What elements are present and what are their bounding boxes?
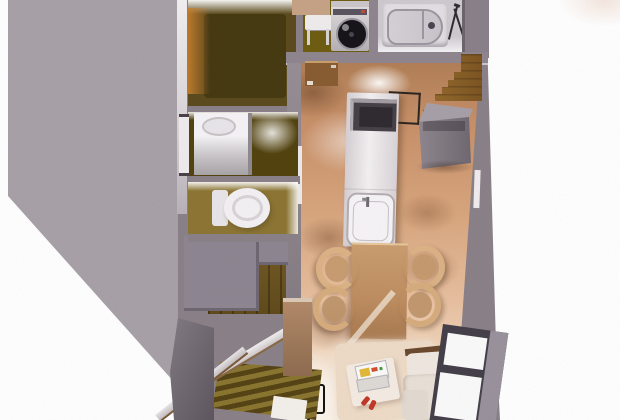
laptop-screen-red [371,367,378,372]
wall-toilet-bottom [188,234,300,242]
toilet-bowl [224,188,270,228]
drum-center [349,32,354,37]
floorplan-render-canvas [0,0,620,420]
toilet-right-light [286,182,298,236]
sofa-chaise [402,390,428,420]
chair-seat [322,296,346,322]
stool-top [305,15,332,30]
dining-chair [399,283,441,327]
laundry-counter [292,0,330,15]
dining-chair [316,247,358,291]
toilet-seat-ring [232,195,263,221]
cabinet-highlight [331,65,336,68]
left-wall-light-band [177,0,187,214]
stool-leg [307,29,310,45]
washing-machine [331,1,369,51]
window-pane [434,372,482,420]
dining-chair [313,287,355,331]
rack-joint [454,3,461,8]
window-pane [443,333,487,370]
sink-faucet [366,197,369,207]
building-corner-wall [170,318,214,420]
hall-lamp-glow [188,8,210,94]
dining-chair [403,245,445,289]
wall-laundry-bath [369,0,378,57]
stool-leg [326,29,329,45]
hall-floor-shade [204,14,286,98]
entry-floor-white [271,396,308,420]
washroom-door [179,114,189,176]
cabinet-highlight [307,81,313,85]
counter-box-shade [423,121,465,131]
washer-controls [333,9,367,15]
vanity-basin [202,117,236,136]
cooktop-recess [359,107,393,128]
washer-indicator [361,10,365,13]
faucet-handle [362,198,366,201]
island-seam [344,188,396,190]
kitchen-cabinet-small [305,61,338,86]
entry-pillar [283,298,312,376]
tub-divider [422,11,424,39]
washer-top-panel [331,1,369,7]
laptop-screen-yellow [359,368,370,378]
scan-tint [540,0,620,60]
bathtub [382,4,448,47]
chair-seat [408,292,432,318]
tub-drain [428,22,435,29]
island-sink [346,192,395,247]
counter-box-shadow [415,160,475,174]
landing-platform-side [184,236,259,311]
room-upper-hall [188,0,296,106]
sink-basin [352,201,389,242]
dining-table [350,243,408,340]
roof-plane-left [8,0,183,392]
laundry-stool [305,15,332,47]
vanity-cabinet [194,113,252,175]
island-cooktop [350,98,397,131]
drum-glint [342,24,349,31]
washer-drum-door [336,18,368,50]
laptop-screen-green [379,367,383,371]
chair-seat [412,254,436,280]
wall-top-right [462,0,489,58]
kitchen-island [343,92,399,247]
balcony-window [429,324,508,420]
chair-seat [325,256,349,282]
